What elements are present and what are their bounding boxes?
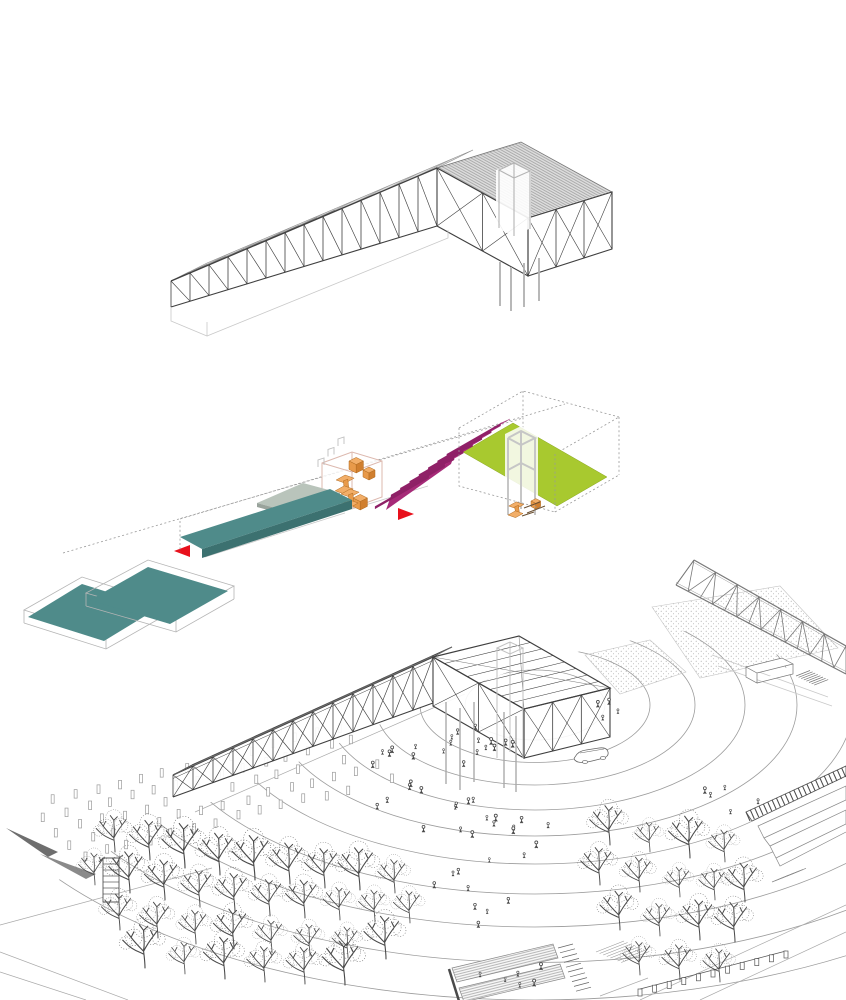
- car-wheel-front: [600, 757, 605, 760]
- site-axonometric-panel: [0, 410, 846, 1000]
- structure-axonometric-panel: [171, 142, 612, 336]
- car-wheel-rear: [582, 761, 587, 764]
- corner-ramp-band: [746, 766, 846, 866]
- grand-stairs-plaza: [449, 944, 565, 1000]
- service-tower: [99, 855, 123, 902]
- tree-grove-left: [76, 810, 425, 985]
- corner-slabs: [758, 786, 846, 866]
- gravel-patch-bridge: [652, 586, 838, 678]
- corner-stair-flight: [772, 868, 806, 882]
- diagram-canvas: [0, 0, 846, 1000]
- program-exploded-panel: [24, 391, 619, 649]
- direction-arrow-right-icon: [398, 508, 414, 520]
- fence: [638, 951, 788, 996]
- service-tower-frame: [99, 855, 123, 902]
- ground-wedge-a: [6, 828, 58, 857]
- bridge-stairs: [796, 671, 828, 686]
- direction-arrow-left-icon: [174, 545, 190, 557]
- car-body: [574, 748, 608, 763]
- side-stair-flights: [558, 941, 649, 991]
- architectural-diagram-sheet: [0, 0, 846, 1000]
- gravel-patch-stage: [585, 640, 686, 694]
- rooftop-elevator-shaft: [496, 163, 531, 236]
- car: [574, 748, 608, 764]
